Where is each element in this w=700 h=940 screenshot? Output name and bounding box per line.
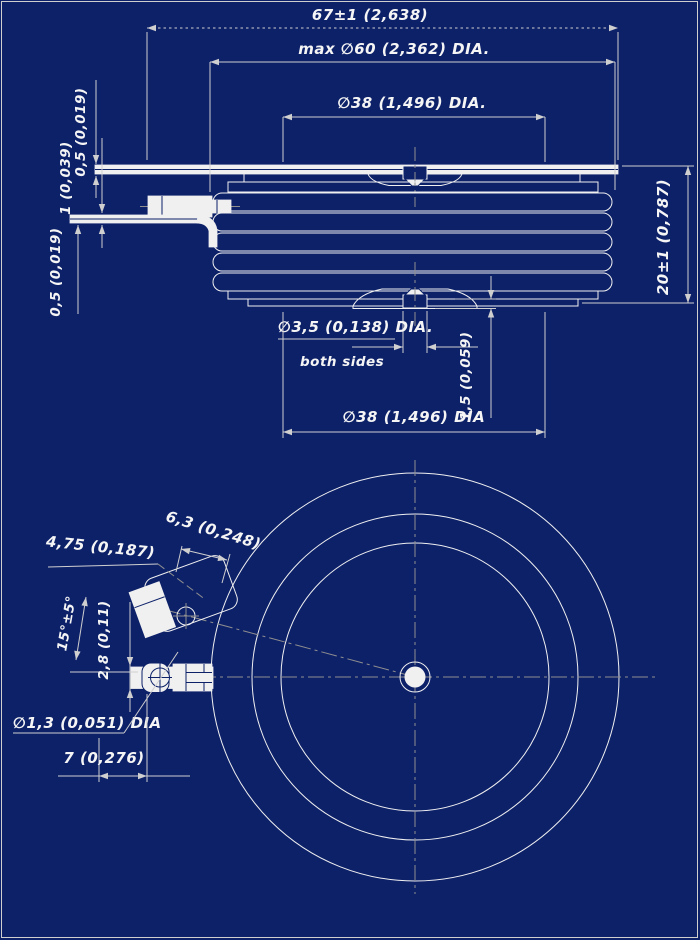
fin	[213, 213, 612, 231]
dim-overall-length: 67±1 (2,638)	[312, 6, 428, 24]
dim-lead-angle: 15°±5°	[54, 594, 79, 652]
dim-terminal-width: 4,75 (0,187)	[44, 532, 156, 561]
dim-pin-hole-dia: ∅1,3 (0,051) DIA	[13, 714, 162, 732]
dim-pole-face-bottom: ∅38 (1,496) DIA	[343, 408, 485, 426]
ceramic-body	[213, 174, 612, 306]
thyristor-dimension-drawing: 67±1 (2,638) max ∅60 (2,362) DIA. ∅38 (1…	[0, 0, 700, 940]
gate-lead-assembly	[70, 196, 242, 247]
dim-top-lead-thickness: 0,5 (0,019)	[73, 87, 89, 176]
gate-connector-block	[148, 196, 212, 217]
dim-terminal-length: 6,3 (0,248)	[164, 507, 263, 553]
fin	[213, 233, 612, 251]
bottom-view: 6,3 (0,248) 4,75 (0,187) 15°±5° 2,8 (0,1…	[13, 460, 655, 894]
lower-gate-terminal	[131, 662, 213, 693]
fin	[213, 193, 612, 211]
dim-mid-lead-thickness: 1 (0,039)	[58, 141, 74, 215]
gate-connector-pin	[212, 200, 231, 213]
top-pole-dome	[368, 147, 462, 207]
dim-pin-distance: 7 (0,276)	[63, 749, 144, 767]
dim-max-body-dia: max ∅60 (2,362) DIA.	[298, 40, 490, 58]
dim-body-height: 20±1 (0,787)	[654, 179, 672, 295]
bottom-view-dimensions: 6,3 (0,248) 4,75 (0,187) 15°±5° 2,8 (0,1…	[13, 507, 263, 782]
technical-drawing-page: 67±1 (2,638) max ∅60 (2,362) DIA. ∅38 (1…	[0, 0, 700, 940]
center-hub	[400, 662, 430, 692]
lead-elbow	[197, 215, 217, 247]
dim-gate-hole-note: both sides	[300, 354, 384, 370]
dim-gate-hole-dia: ∅3,5 (0,138) DIA.	[278, 318, 433, 336]
dim-pole-face-top: ∅38 (1,496) DIA.	[338, 94, 487, 112]
drawing-frame	[2, 2, 698, 938]
fin	[213, 273, 612, 291]
upper-gate-terminal	[127, 553, 240, 640]
fin	[213, 253, 612, 271]
gate-connector-top-view	[129, 582, 175, 638]
dim-terminal-offset: 2,8 (0,11)	[96, 600, 112, 679]
side-view: 67±1 (2,638) max ∅60 (2,362) DIA. ∅38 (1…	[48, 6, 694, 438]
dim-bottom-lead-thickness: 0,5 (0,019)	[48, 227, 64, 316]
top-lead	[95, 165, 618, 174]
